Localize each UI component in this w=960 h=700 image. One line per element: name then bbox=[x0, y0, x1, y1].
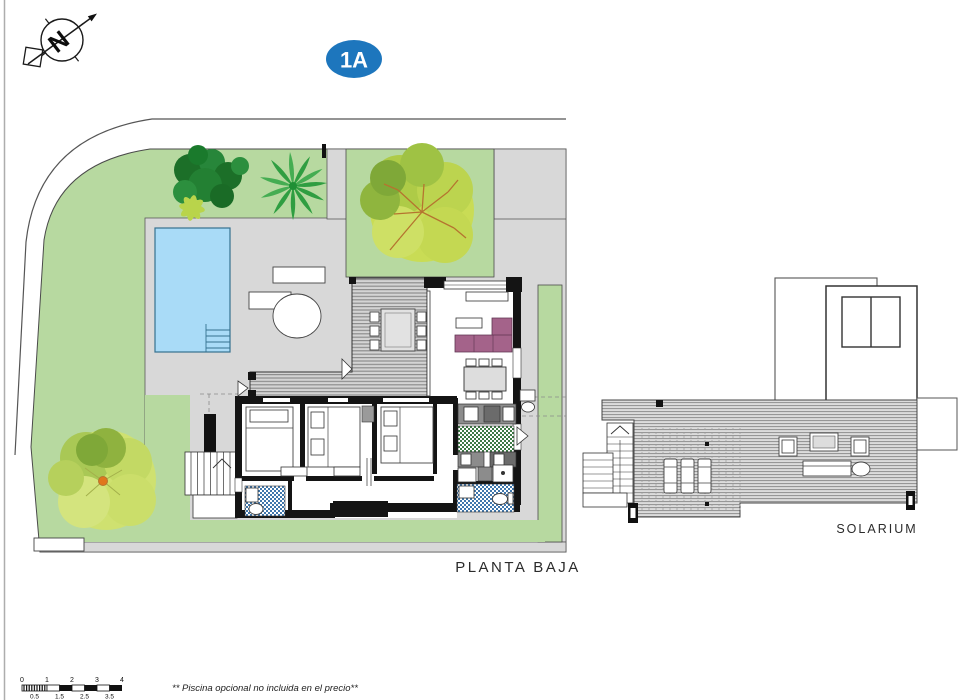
porch-dining-set bbox=[370, 309, 426, 351]
sink bbox=[246, 488, 258, 502]
wardrobe bbox=[334, 467, 360, 476]
gate-marker bbox=[322, 144, 326, 158]
bathroom-main bbox=[457, 484, 514, 512]
exterior-stair bbox=[185, 452, 237, 518]
side-table bbox=[852, 462, 870, 476]
kitchen bbox=[458, 404, 516, 482]
solarium-stair bbox=[583, 423, 633, 507]
sun-loungers bbox=[664, 459, 711, 493]
unit-badge: 1A bbox=[326, 40, 382, 78]
pool-disclaimer: ** Piscina opcional no incluida en el pr… bbox=[172, 683, 358, 694]
side-terrace bbox=[917, 398, 957, 450]
scale-tick-label: 3.5 bbox=[105, 694, 114, 700]
site-plan-drawing: N 1A bbox=[0, 0, 960, 700]
driveway-gate bbox=[34, 538, 84, 551]
pool bbox=[155, 228, 230, 352]
ground-floor-plan bbox=[15, 119, 566, 552]
coffee-table bbox=[456, 318, 482, 328]
compass-north-letter: N bbox=[43, 25, 74, 58]
scale-tick-label: 0 bbox=[20, 677, 24, 684]
north-compass-icon: N bbox=[23, 14, 97, 67]
scale-tick-label: 1.5 bbox=[55, 694, 64, 700]
scale-tick-label: 2.5 bbox=[80, 694, 89, 700]
scale-tick-label: 0.5 bbox=[30, 694, 39, 700]
scale-bar: 0 1 2 3 4 0.5 1.5 2.5 3.5 bbox=[20, 677, 124, 700]
solarium-caption: SOLARIUM bbox=[836, 522, 917, 536]
tree-trunk-dot bbox=[99, 477, 108, 486]
solarium-deck bbox=[602, 400, 917, 517]
dining-table bbox=[464, 367, 506, 391]
toilet bbox=[493, 494, 508, 505]
wardrobe bbox=[281, 467, 307, 476]
scale-tick-label: 3 bbox=[95, 677, 99, 684]
scale-tick-label: 2 bbox=[70, 677, 74, 684]
toilet bbox=[249, 504, 263, 515]
bathroom-ensuite bbox=[245, 486, 285, 516]
entry-pier bbox=[204, 414, 216, 458]
solarium-plan: SOLARIUM bbox=[583, 278, 957, 536]
sink bbox=[459, 486, 474, 498]
sideboard bbox=[466, 292, 508, 301]
scale-tick-label: 1 bbox=[45, 677, 49, 684]
outdoor-unit bbox=[520, 390, 535, 412]
ground-floor-caption: PLANTA BAJA bbox=[455, 559, 581, 576]
nightstand bbox=[362, 406, 374, 422]
scale-tick-label: 4 bbox=[120, 677, 124, 684]
kitchen-tile-floor bbox=[458, 426, 514, 452]
bench bbox=[803, 461, 851, 476]
unit-badge-label: 1A bbox=[340, 48, 368, 73]
